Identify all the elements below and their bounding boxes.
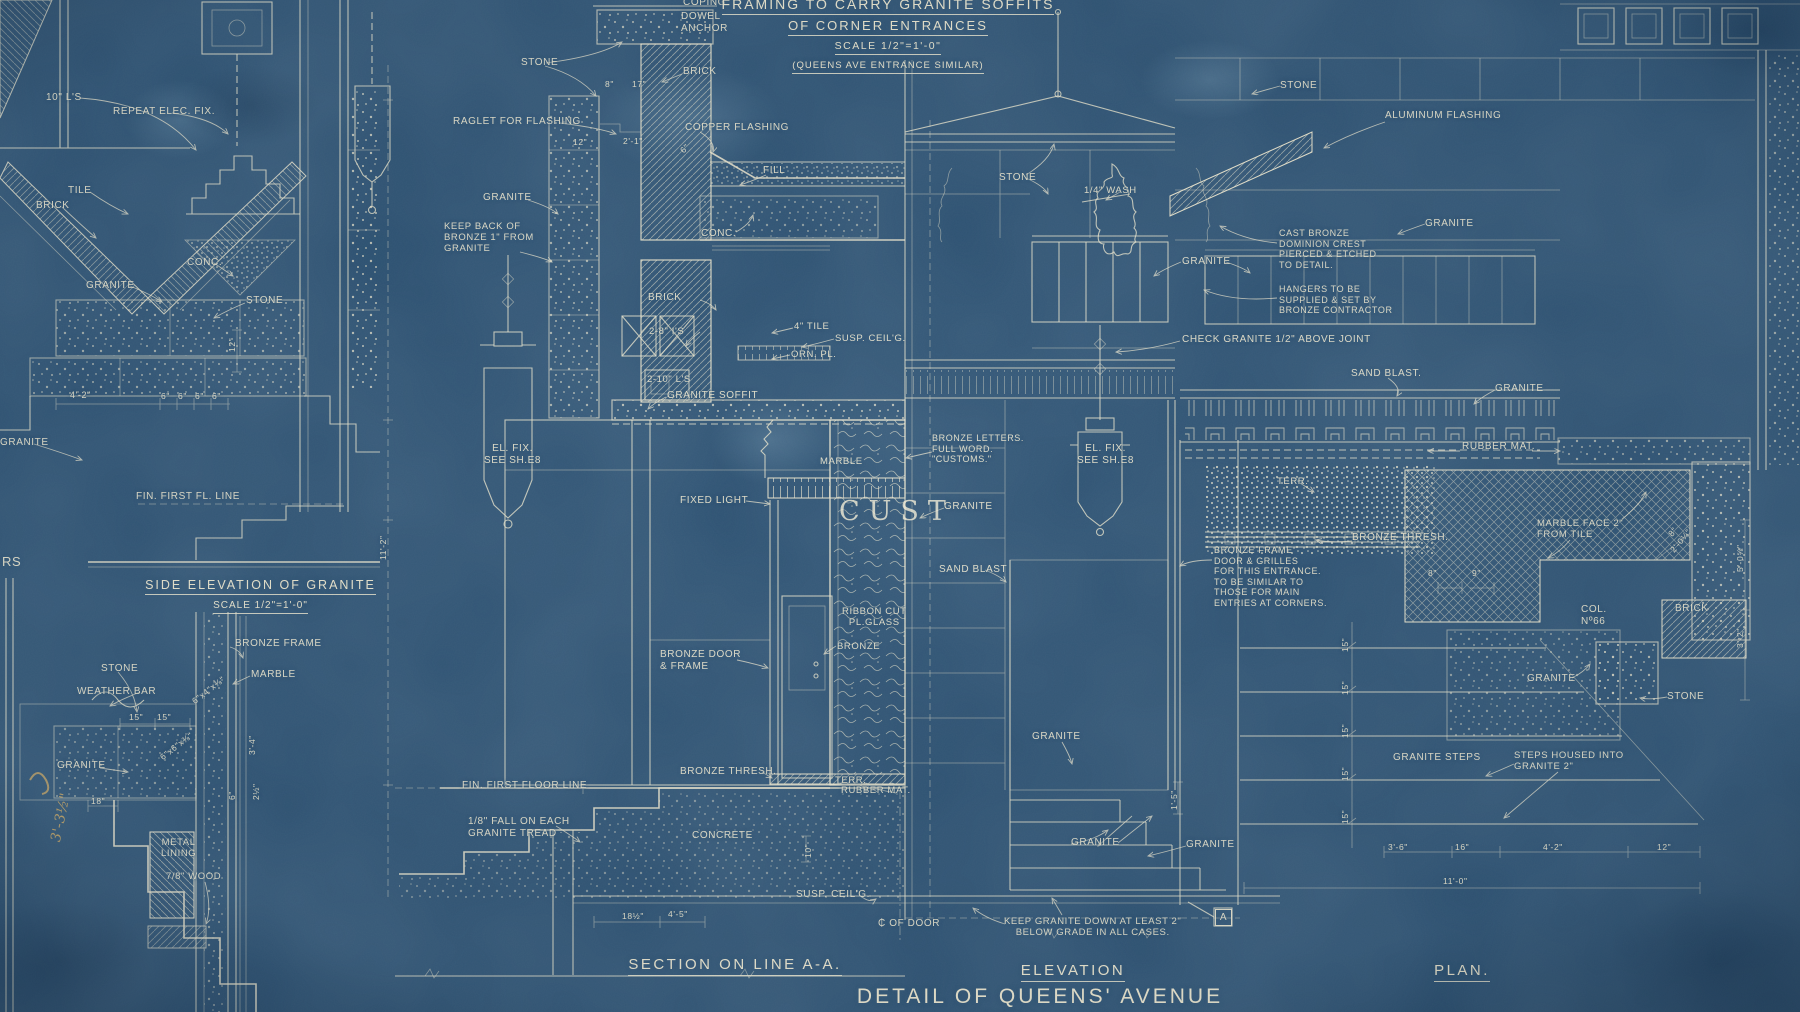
- annotation-label: CONC.: [701, 228, 736, 240]
- annotation-label: 7/8" WOOD: [166, 871, 221, 882]
- annotation-label: BRONZE THRESH.: [1352, 532, 1449, 544]
- annotation-label: GRANITE: [1182, 256, 1231, 268]
- annotation-label: 6": [161, 391, 170, 401]
- annotation-label: 15": [1340, 810, 1350, 824]
- annotation-label: 11'-0": [1443, 876, 1468, 886]
- annotation-label: A: [1215, 909, 1232, 926]
- annotation-label: 15": [1340, 638, 1350, 652]
- detail-title: DETAIL OF QUEENS' AVENUE ENTRANCE: [820, 985, 1260, 1012]
- annotation-label: COPPER FLASHING: [685, 122, 789, 134]
- annotation-label: 12": [1657, 842, 1671, 852]
- side-elevation-scale: SCALE 1/2"=1'-0": [213, 600, 308, 614]
- annotation-label: ₵ OF DOOR: [878, 918, 940, 930]
- annotation-label: 10" L'S: [46, 92, 82, 104]
- annotation-label: ALUMINUM FLASHING: [1385, 110, 1501, 122]
- annotation-label: CHECK GRANITE 1/2" ABOVE JOINT: [1182, 334, 1371, 346]
- annotation-label: 3'-6": [1388, 842, 1408, 852]
- annotation-label: BRONZE FRAME DOOR & GRILLES FOR THIS ENT…: [1214, 545, 1327, 609]
- annotation-label: 3'-2": [1735, 628, 1745, 648]
- framing-title-scale: SCALE 1/2"=1'-0": [835, 40, 942, 55]
- annotation-label: 3'-4": [247, 735, 257, 755]
- annotation-label: 4'-2": [1543, 842, 1563, 852]
- plan-title: PLAN.: [1412, 962, 1512, 982]
- annotation-label: STONE: [521, 57, 558, 69]
- annotation-label: GRANITE: [86, 280, 135, 292]
- annotation-label: RUBBER MAT.: [1462, 441, 1535, 453]
- annotation-label: 18": [91, 796, 105, 806]
- annotation-label: STONE: [999, 172, 1036, 184]
- annotation-label: 8": [605, 79, 614, 89]
- annotation-label: REPEAT ELEC. FIX.: [113, 106, 215, 118]
- annotation-label: 4'-5": [668, 909, 688, 919]
- annotation-label: STONE: [246, 295, 283, 307]
- annotation-label: CONC.: [187, 257, 222, 269]
- annotation-label: MARBLE: [251, 669, 296, 681]
- annotation-label: 11'-2": [378, 535, 388, 560]
- annotation-label: KEEP BACK OF BRONZE 1" FROM GRANITE: [444, 221, 534, 255]
- annotation-label: 12": [227, 338, 237, 352]
- annotation-label: GRANITE: [57, 760, 106, 772]
- annotation-label: STONE: [101, 663, 138, 675]
- annotation-label: SAND BLAST.: [1351, 368, 1422, 380]
- annotation-label: BRONZE FRAME: [235, 638, 322, 650]
- annotation-label: EL. FIX. SEE SH.E8: [484, 443, 541, 467]
- annotation-label: 16": [1455, 842, 1469, 852]
- annotation-label: GRANITE: [1495, 383, 1544, 395]
- annotation-label: 6": [678, 142, 691, 155]
- elevation-title: ELEVATION: [1008, 962, 1138, 982]
- annotation-label: 2½": [251, 783, 261, 800]
- annotation-label: GRANITE: [1425, 218, 1474, 230]
- annotation-label: 15": [157, 712, 171, 722]
- framing-title-line2: OF CORNER ENTRANCES: [788, 18, 988, 36]
- side-elevation-title: SIDE ELEVATION OF GRANITE: [145, 578, 376, 595]
- annotation-label: MARBLE FACE 2" FROM TILE: [1537, 518, 1623, 540]
- annotation-label: SAND BLAST: [939, 564, 1007, 576]
- annotation-label: 6": [212, 391, 221, 401]
- annotation-label: MARBLE: [820, 456, 863, 467]
- annotation-label: 8": [1428, 568, 1437, 578]
- annotation-label: 12": [573, 137, 587, 147]
- annotation-label: RS: [2, 554, 21, 569]
- annotation-label: HANGERS TO BE SUPPLIED & SET BY BRONZE C…: [1279, 284, 1393, 316]
- annotation-label: 6": [195, 391, 204, 401]
- annotation-label: 1/4" WASH: [1084, 185, 1137, 196]
- side-elevation-title-block: SIDE ELEVATION OF GRANITE SCALE 1/2"=1'-…: [138, 576, 383, 614]
- annotation-label: SUSP. CEIL'G.: [835, 333, 906, 344]
- blueprint-sheet: 10" L'SREPEAT ELEC. FIX.TILEBRICKCONC.GR…: [0, 0, 1800, 1012]
- annotation-label: 5'-0⅝": [1735, 544, 1745, 572]
- annotation-label: BRONZE: [837, 641, 880, 652]
- annotation-label: 2'-1": [623, 136, 643, 146]
- annotation-label: ORN. PL.: [791, 349, 836, 360]
- annotation-label: 15": [1340, 724, 1350, 738]
- annotation-label: STONE: [1280, 80, 1317, 92]
- annotation-label: 15": [1340, 767, 1350, 781]
- annotation-label: 9": [1472, 568, 1481, 578]
- annotation-label: RIBBON CUT PL.GLASS: [842, 606, 907, 628]
- annotation-label: TILE: [68, 185, 92, 197]
- annotation-label: 6": [227, 791, 237, 800]
- annotation-label: SUSP. CEIL'G.: [796, 889, 870, 901]
- annotation-label: GRANITE: [1186, 839, 1235, 851]
- annotation-label: FIN. FIRST FLOOR LINE: [462, 780, 587, 792]
- annotation-label: STONE: [1667, 691, 1704, 703]
- framing-title-note: (QUEENS AVE ENTRANCE SIMILAR): [792, 60, 983, 74]
- annotation-label: KEEP GRANITE DOWN AT LEAST 2" BELOW GRAD…: [1004, 916, 1181, 938]
- annotation-label: GRANITE: [0, 437, 49, 449]
- annotation-label: FIXED LIGHT: [680, 495, 748, 507]
- annotation-label: FIN. FIRST FL. LINE: [136, 491, 240, 503]
- annotation-label: 10": [803, 844, 813, 858]
- framing-title-block: FRAMING TO CARRY GRANITE SOFFITS OF CORN…: [712, 0, 1064, 74]
- annotation-label: 6"x4"x⅜": [190, 674, 227, 706]
- annotation-label: 15": [129, 712, 143, 722]
- annotation-label: BRICK: [36, 200, 70, 212]
- annotation-label: 2-10" L'S: [647, 374, 691, 385]
- annotation-label: BRONZE DOOR & FRAME: [660, 649, 741, 673]
- annotation-label: GRANITE STEPS: [1393, 752, 1481, 764]
- annotation-label: EL. FIX. SEE SH.E8: [1077, 443, 1134, 467]
- framing-title-line1: FRAMING TO CARRY GRANITE SOFFITS: [722, 0, 1055, 15]
- annotation-label: GRANITE: [1071, 837, 1120, 849]
- annotation-label: GRANITE: [1032, 731, 1081, 743]
- annotation-label: GRANITE: [1527, 673, 1576, 685]
- annotation-label: 18½": [622, 911, 644, 921]
- annotation-label: CONCRETE: [692, 830, 753, 842]
- annotation-label: 1'-5": [1169, 790, 1179, 810]
- annotation-label: 4'-2": [70, 390, 91, 401]
- annotation-label: BRONZE LETTERS. FULL WORD. "CUSTOMS.": [932, 433, 1024, 465]
- annotation-label: RUBBER MAT.: [841, 785, 911, 796]
- annotation-label: BRICK: [648, 292, 682, 304]
- annotation-label: WEATHER BAR: [77, 686, 156, 698]
- annotation-label: CUST: [839, 496, 955, 528]
- annotation-label: GRANITE: [483, 192, 532, 204]
- annotation-label: GRANITE: [944, 501, 993, 513]
- annotation-label: 6": [178, 391, 187, 401]
- annotation-label: BRICK: [1675, 603, 1709, 615]
- annotation-label: COL. Nº66: [1581, 604, 1607, 628]
- annotation-label: 1/8" FALL ON EACH GRANITE TREAD: [468, 816, 570, 840]
- annotation-label: RAGLET FOR FLASHING: [453, 116, 581, 128]
- annotation-label: GRANITE SOFFIT: [667, 390, 758, 402]
- annotation-label: FILL: [763, 165, 785, 177]
- annotation-label: 4" TILE: [794, 321, 829, 332]
- annotation-label: 17": [632, 79, 646, 89]
- annotation-label: 15": [1340, 681, 1350, 695]
- annotation-layer: 10" L'SREPEAT ELEC. FIX.TILEBRICKCONC.GR…: [0, 0, 1800, 1012]
- annotation-label: 3'-3½": [48, 791, 75, 843]
- annotation-label: 2-8" I'S: [649, 326, 684, 337]
- annotation-label: 6"x6"x⅜": [158, 730, 195, 762]
- annotation-label: TERR.: [1277, 476, 1309, 487]
- annotation-label: CAST BRONZE DOMINION CREST PIERCED & ETC…: [1279, 228, 1377, 270]
- annotation-label: STEPS HOUSED INTO GRANITE 2": [1514, 750, 1624, 772]
- annotation-label: BRONZE THRESH.: [680, 766, 777, 778]
- annotation-label: METAL LINING: [161, 837, 196, 859]
- section-title: SECTION ON LINE A-A.: [620, 956, 850, 976]
